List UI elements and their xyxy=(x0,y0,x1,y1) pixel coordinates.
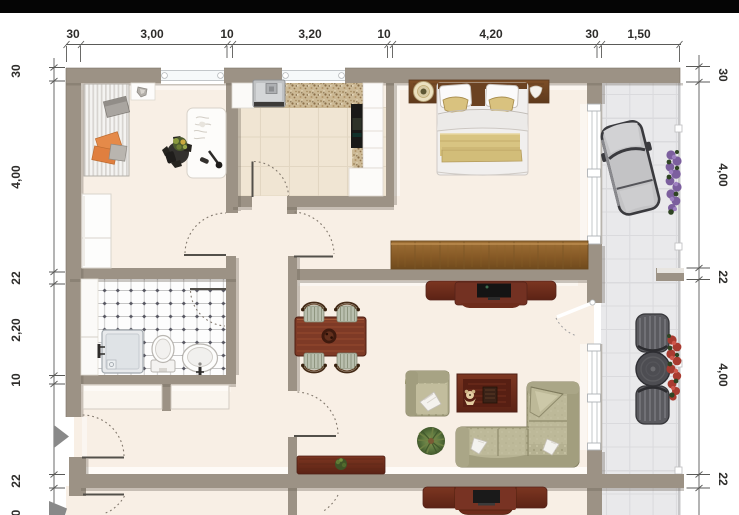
svg-text:30: 30 xyxy=(9,64,23,78)
svg-text:10: 10 xyxy=(9,373,23,387)
svg-text:22: 22 xyxy=(9,271,23,285)
svg-text:3,00: 3,00 xyxy=(140,27,164,41)
svg-text:3,20: 3,20 xyxy=(298,27,322,41)
svg-text:0: 0 xyxy=(9,509,23,515)
svg-text:4,00: 4,00 xyxy=(9,165,23,189)
svg-text:30: 30 xyxy=(66,27,80,41)
svg-text:30: 30 xyxy=(716,68,730,82)
svg-text:4,00: 4,00 xyxy=(716,163,730,187)
svg-text:2,20: 2,20 xyxy=(9,318,23,342)
svg-text:22: 22 xyxy=(9,474,23,488)
svg-text:30: 30 xyxy=(585,27,599,41)
svg-text:22: 22 xyxy=(716,472,730,486)
svg-text:4,20: 4,20 xyxy=(479,27,503,41)
svg-text:1,50: 1,50 xyxy=(627,27,651,41)
svg-text:10: 10 xyxy=(220,27,234,41)
svg-text:22: 22 xyxy=(716,270,730,284)
svg-text:10: 10 xyxy=(377,27,391,41)
svg-text:4,00: 4,00 xyxy=(716,363,730,387)
